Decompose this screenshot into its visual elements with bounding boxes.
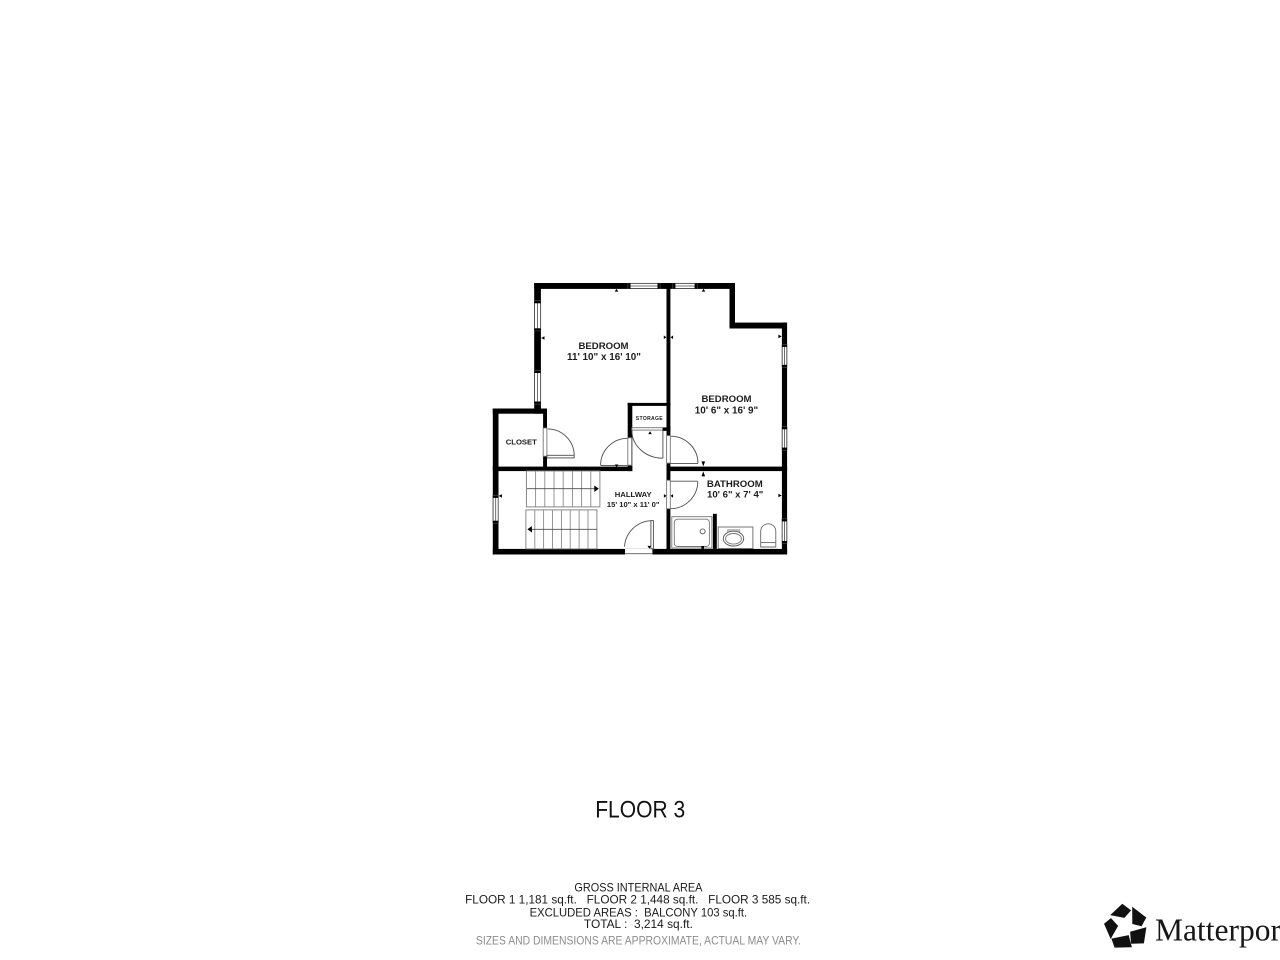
svg-text:BEDROOM: BEDROOM — [578, 341, 628, 352]
svg-text:HALLWAY: HALLWAY — [615, 490, 652, 499]
svg-text:10' 6" x 16' 9": 10' 6" x 16' 9" — [695, 405, 759, 416]
svg-text:Matterport: Matterport — [1155, 913, 1280, 948]
svg-text:SIZES AND DIMENSIONS ARE APPRO: SIZES AND DIMENSIONS ARE APPROXIMATE, AC… — [476, 933, 801, 947]
svg-text:10' 6" x 7' 4": 10' 6" x 7' 4" — [707, 490, 763, 501]
svg-text:CLOSET: CLOSET — [506, 437, 537, 446]
svg-text:BATHROOM: BATHROOM — [707, 479, 763, 490]
svg-text:BEDROOM: BEDROOM — [701, 394, 751, 405]
svg-text:STORAGE: STORAGE — [636, 416, 663, 422]
svg-text:15' 10" x 11' 0": 15' 10" x 11' 0" — [607, 500, 660, 509]
svg-text:TOTAL : 3,214 sq.ft.: TOTAL : 3,214 sq.ft. — [584, 917, 693, 931]
svg-text:FLOOR 3: FLOOR 3 — [595, 797, 685, 824]
svg-text:11' 10" x 16' 10": 11' 10" x 16' 10" — [567, 352, 641, 363]
